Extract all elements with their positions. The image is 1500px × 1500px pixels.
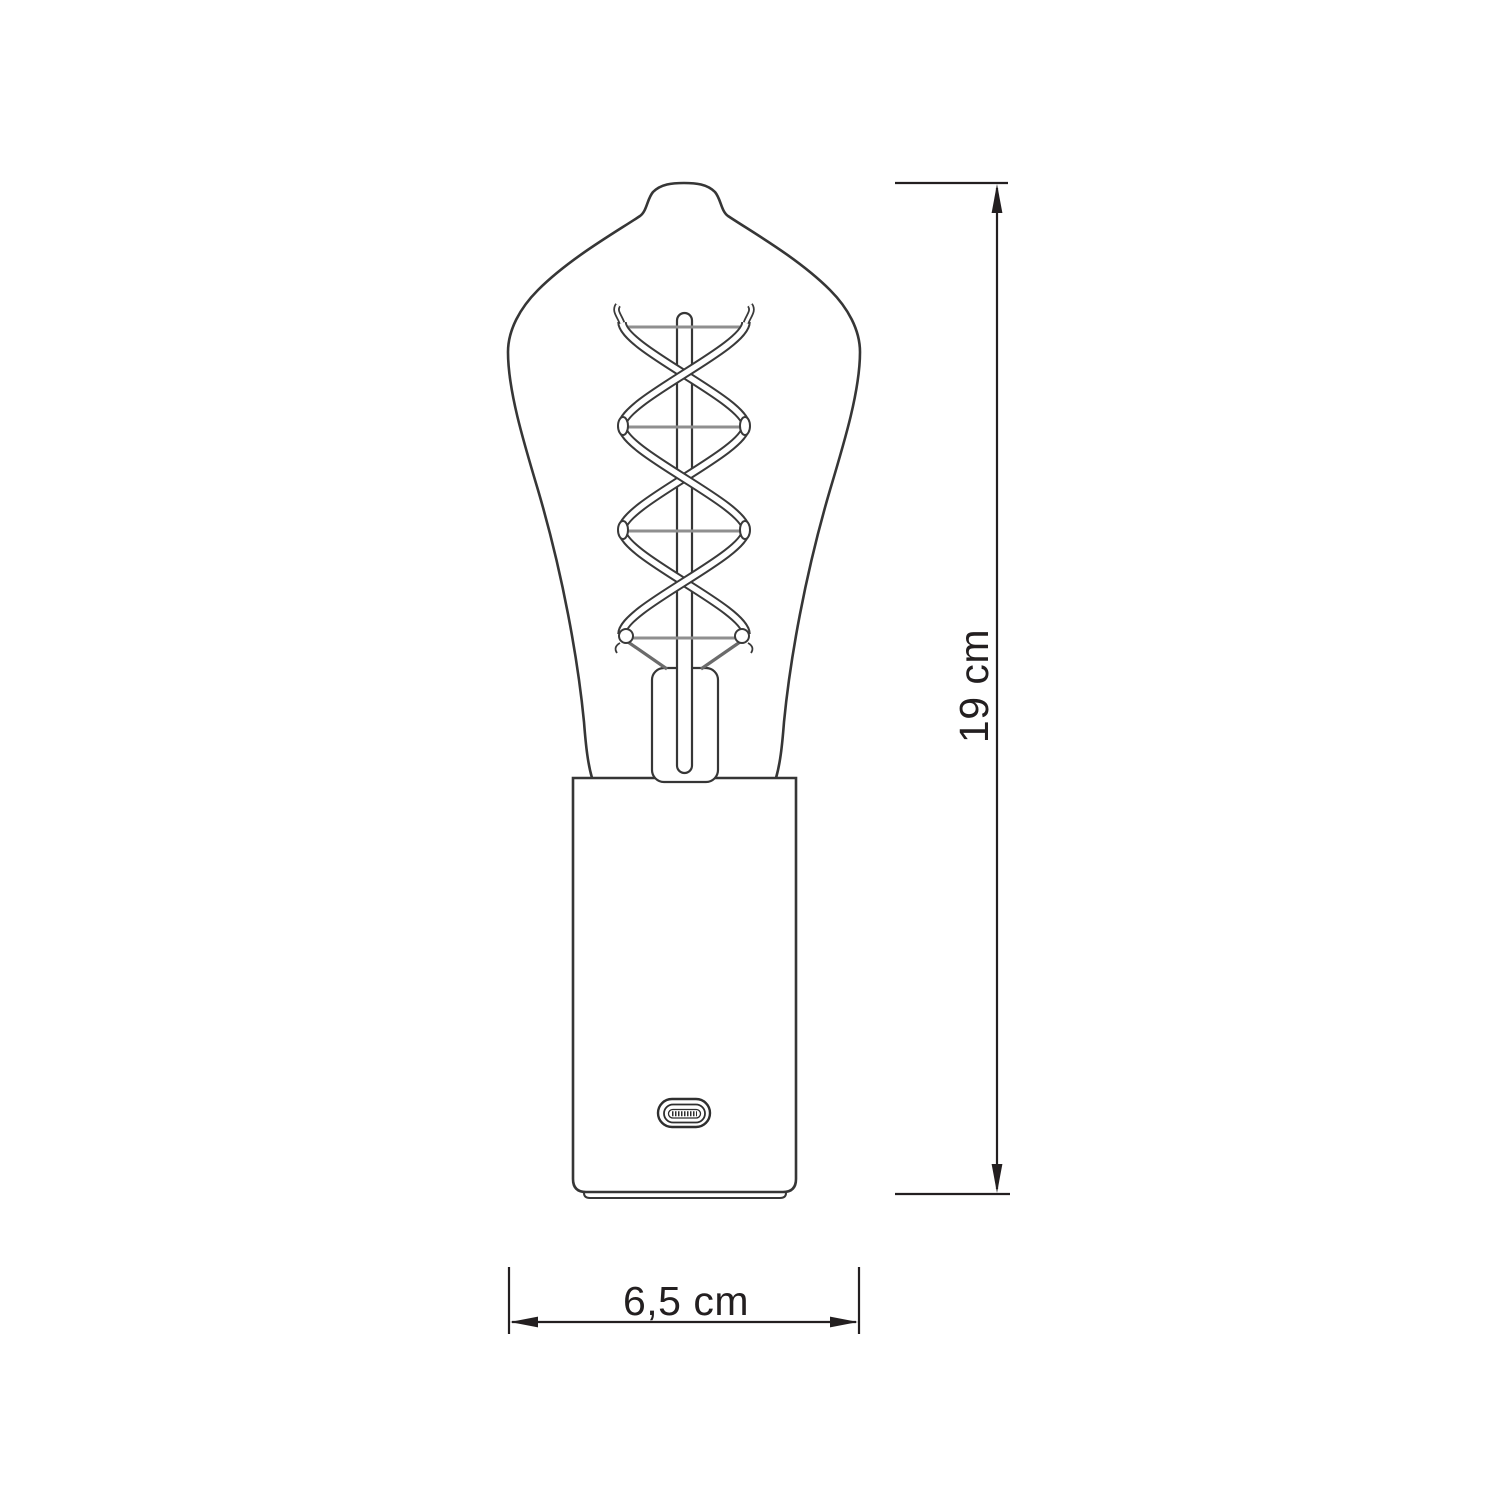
filament-loop (735, 629, 749, 643)
filament-lead-wire (701, 642, 740, 669)
width-arrow-left (510, 1317, 538, 1328)
height-dimension-label: 19 cm (951, 629, 997, 743)
filament-curl (748, 643, 752, 653)
diagram-svg: 19 cm 6,5 cm (0, 0, 1500, 1500)
height-arrow-down (992, 1164, 1003, 1193)
filament-loop (740, 417, 750, 435)
filament-loop (619, 629, 633, 643)
base-cylinder (573, 778, 796, 1192)
width-arrow-right (830, 1317, 858, 1328)
dimension-diagram: 19 cm 6,5 cm (0, 0, 1500, 1500)
filament-loop (740, 521, 750, 539)
filament-helix (622, 322, 746, 634)
height-arrow-up (992, 184, 1003, 213)
width-dimension-label: 6,5 cm (623, 1278, 749, 1324)
filament-loop (618, 521, 628, 539)
filament-lead-wire (628, 642, 667, 669)
filament-loop (618, 417, 628, 435)
lamp-drawing (508, 183, 860, 1198)
filament-curl (616, 643, 620, 653)
usb-c-port (658, 1099, 710, 1127)
